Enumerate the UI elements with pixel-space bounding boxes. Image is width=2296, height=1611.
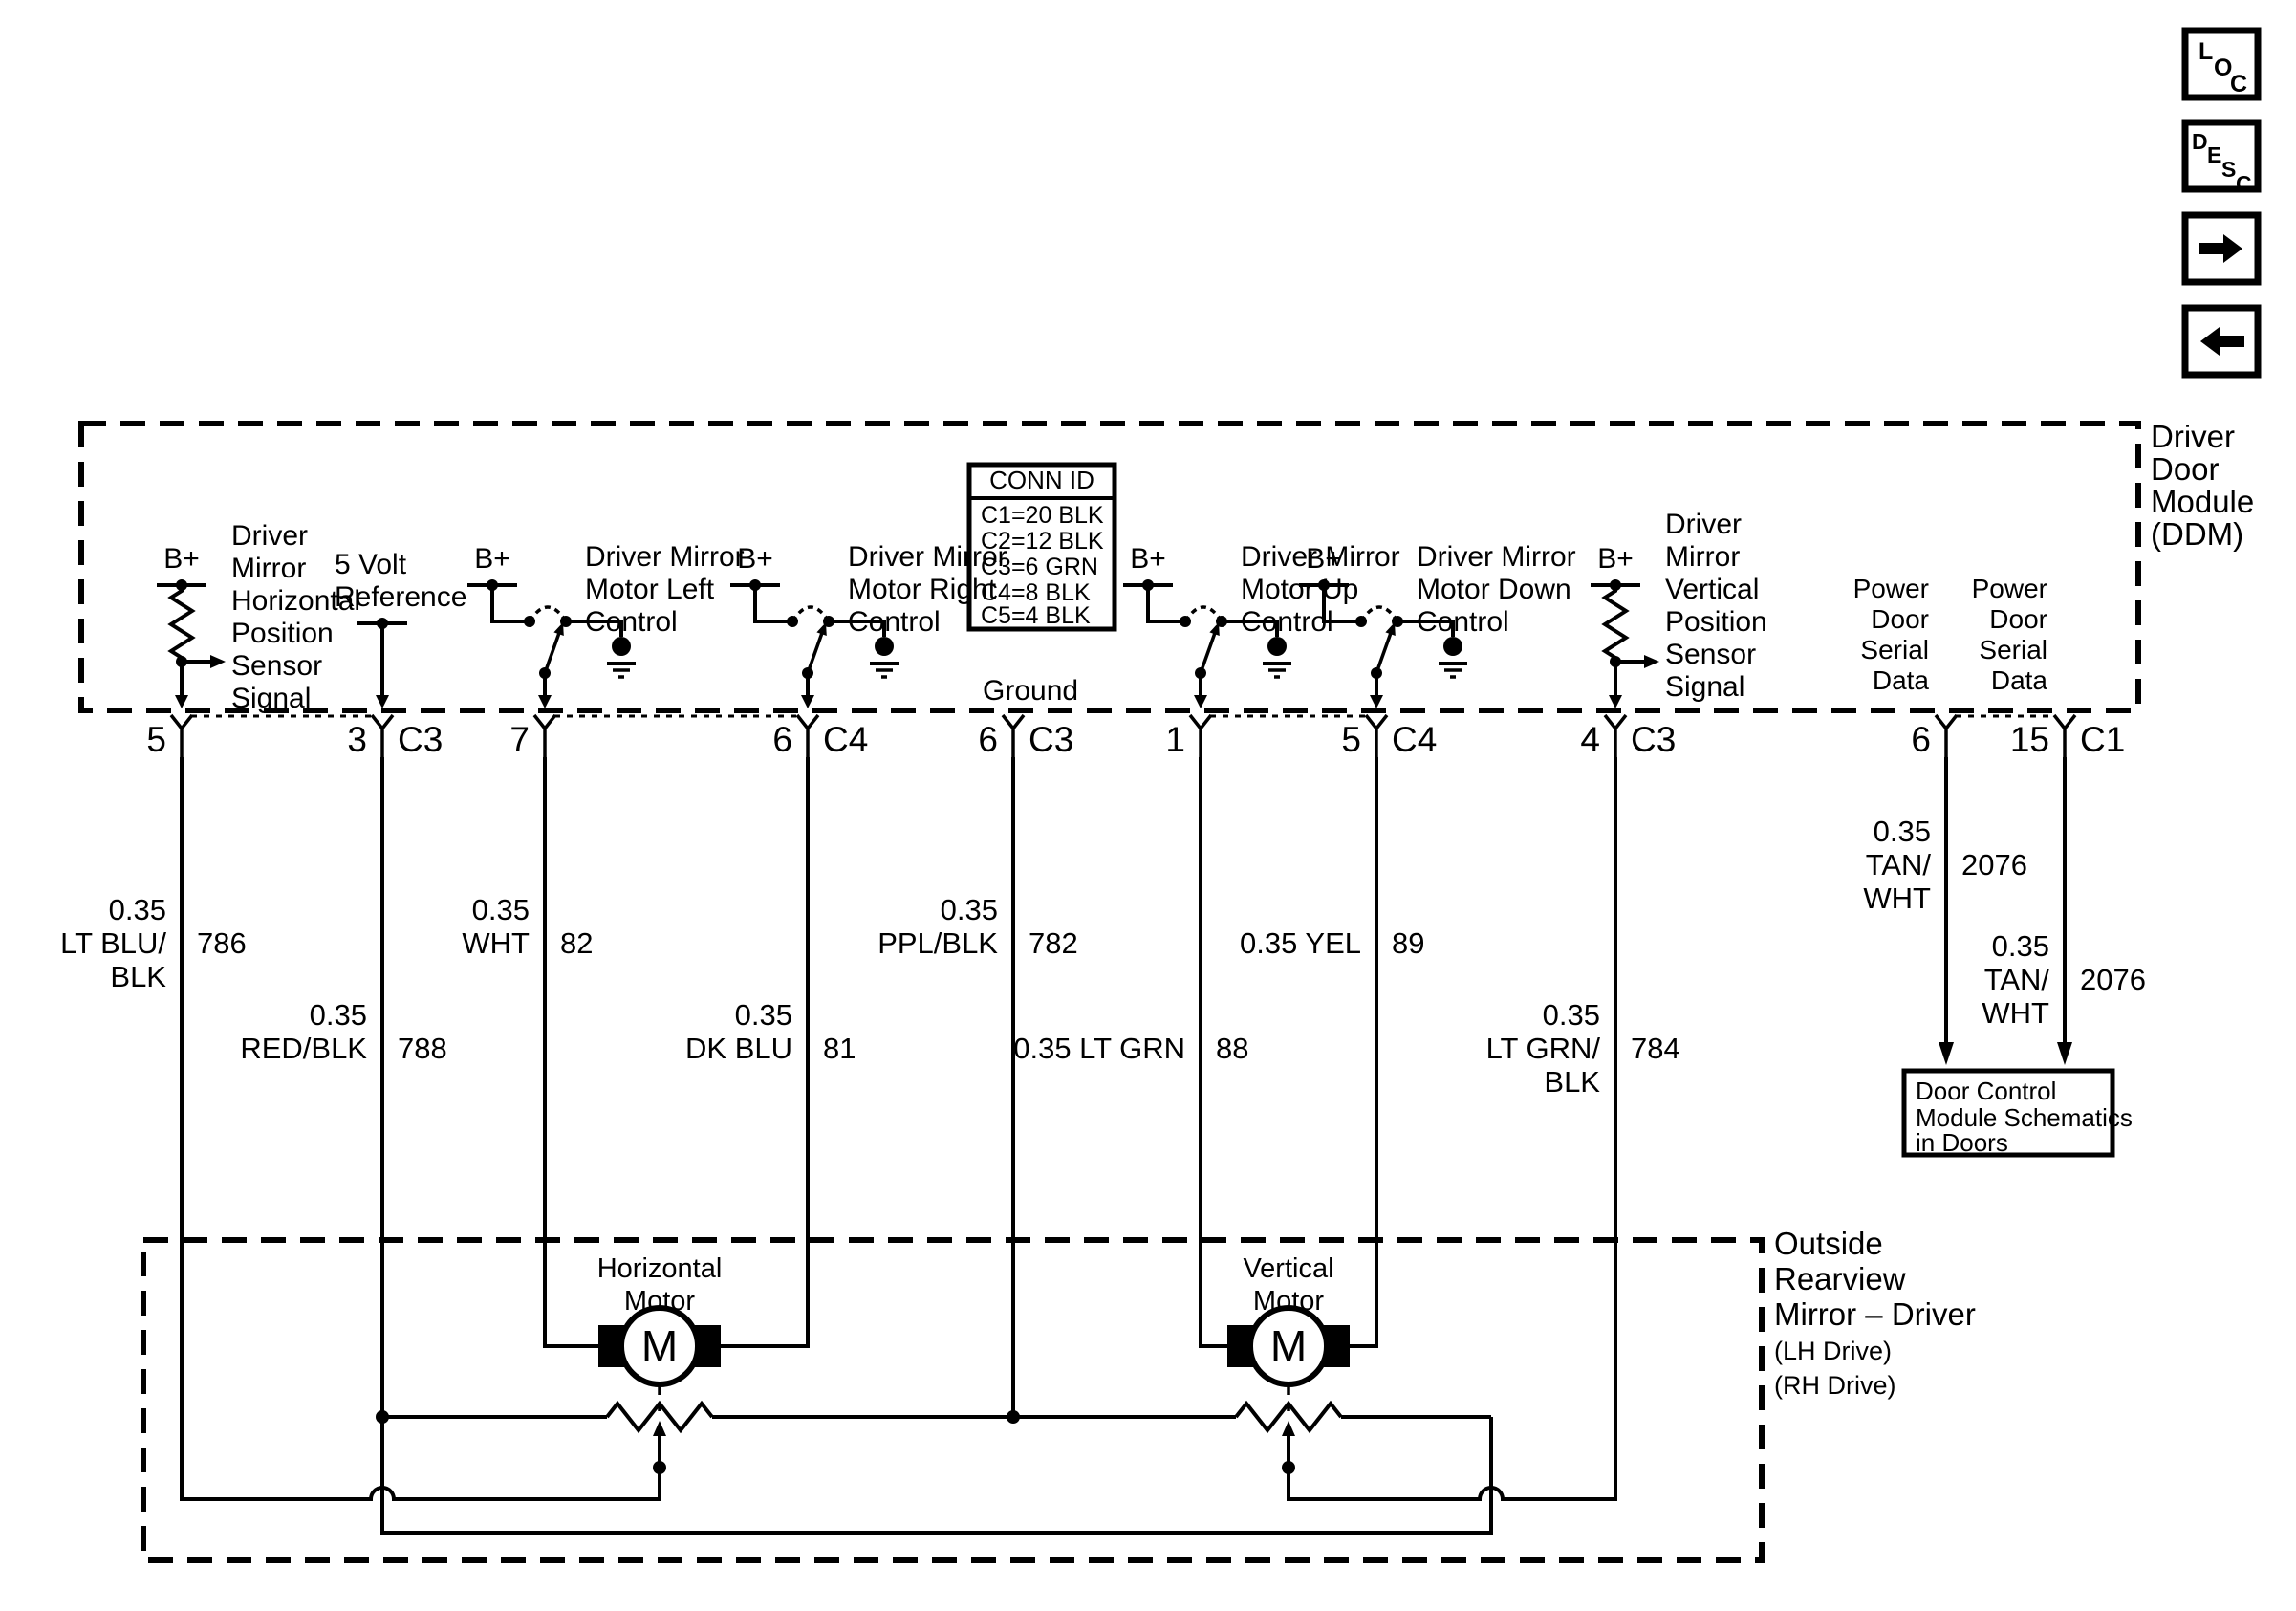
svg-text:2076: 2076 <box>2080 963 2146 996</box>
svg-text:Reference: Reference <box>335 581 466 613</box>
desc-letter: S <box>2221 157 2236 182</box>
svg-text:88: 88 <box>1216 1032 1248 1065</box>
svg-text:C1=20 BLK: C1=20 BLK <box>981 502 1104 529</box>
svg-text:Data: Data <box>1991 665 2048 695</box>
svg-text:0.35: 0.35 <box>109 893 166 926</box>
svg-text:C3: C3 <box>398 720 443 759</box>
svg-text:C3: C3 <box>1029 720 1073 759</box>
pin-numbers: 5 3 C3 7 6 C4 6 C3 1 5 C4 4 C3 6 15 C1 <box>146 720 2125 759</box>
svg-text:B+: B+ <box>163 543 200 575</box>
ddm-module-name: Driver Door Module (DDM) <box>2151 419 2254 552</box>
svg-text:Door Control: Door Control <box>1916 1077 2056 1105</box>
svg-text:0.35: 0.35 <box>310 998 367 1032</box>
svg-text:Driver Mirror: Driver Mirror <box>585 541 745 573</box>
svg-text:Position: Position <box>231 618 334 649</box>
vertical-motor-symbol: Vertical Motor M <box>1227 1253 1350 1413</box>
desc-letter: C <box>2236 171 2252 196</box>
svg-text:89: 89 <box>1392 926 1424 960</box>
svg-text:0.35: 0.35 <box>941 893 998 926</box>
schematic-canvas: L O C D E S C Driver Door Module (DDM) C… <box>0 0 2296 1611</box>
svg-text:5 Volt: 5 Volt <box>335 549 407 580</box>
svg-text:Control: Control <box>585 606 678 638</box>
svg-text:6: 6 <box>978 720 998 759</box>
svg-text:WHT: WHT <box>462 926 530 960</box>
loc-button[interactable]: L O C <box>2185 31 2258 98</box>
svg-text:4: 4 <box>1580 720 1600 759</box>
svg-text:Module: Module <box>2151 484 2254 519</box>
svg-text:Mirror – Driver: Mirror – Driver <box>1774 1296 1976 1332</box>
svg-text:Outside: Outside <box>1774 1226 1883 1261</box>
svg-text:Control: Control <box>1417 606 1509 638</box>
svg-text:Mirror: Mirror <box>1665 541 1740 573</box>
wire-label-89: 0.35 YEL 89 <box>1240 926 1424 960</box>
svg-text:Door: Door <box>1989 604 2047 634</box>
svg-text:5: 5 <box>1341 720 1361 759</box>
svg-text:0.35: 0.35 <box>735 998 792 1032</box>
svg-text:Driver: Driver <box>1665 509 1742 540</box>
wire-label-782: 0.35 PPL/BLK 782 <box>877 893 1078 960</box>
svg-text:Driver Mirror: Driver Mirror <box>848 541 1007 573</box>
wire-label-786: 0.35 LT BLU/ BLK 786 <box>60 893 247 993</box>
svg-text:Horizontal: Horizontal <box>597 1253 723 1284</box>
ddm-pin-row <box>171 715 2075 757</box>
svg-text:C5=4 BLK: C5=4 BLK <box>981 602 1091 629</box>
svg-text:B+: B+ <box>1306 543 1342 575</box>
svg-text:C3: C3 <box>1631 720 1676 759</box>
svg-text:Rearview: Rearview <box>1774 1261 1906 1296</box>
svg-text:Door: Door <box>1871 604 1929 634</box>
wiring-diagram-page: L O C D E S C Driver Door Module (DDM) C… <box>0 0 2296 1611</box>
svg-text:Serial: Serial <box>1860 635 1929 664</box>
svg-text:Motor Up: Motor Up <box>1241 574 1358 605</box>
desc-letter: D <box>2192 129 2208 154</box>
svg-text:B+: B+ <box>474 543 510 575</box>
svg-text:Sensor: Sensor <box>231 650 322 682</box>
svg-text:Door: Door <box>2151 451 2220 487</box>
mirror-module-name: Outside Rearview Mirror – Driver (LH Dri… <box>1774 1226 1976 1400</box>
svg-text:PPL/BLK: PPL/BLK <box>877 926 998 960</box>
svg-text:5: 5 <box>146 720 166 759</box>
mirror-left-switch-symbol: B+ Driver Mirror Motor Left Control <box>467 541 745 708</box>
svg-text:BLK: BLK <box>1544 1065 1600 1099</box>
svg-text:81: 81 <box>823 1032 856 1065</box>
svg-text:Control: Control <box>1241 606 1333 638</box>
svg-text:Signal: Signal <box>1665 671 1744 703</box>
position-sensor-rail <box>376 1404 1491 1430</box>
svg-text:B+: B+ <box>737 543 773 575</box>
svg-text:B+: B+ <box>1130 543 1166 575</box>
svg-text:Sensor: Sensor <box>1665 639 1756 670</box>
h-position-sensor-symbol: B+ Driver Mirror Horizontal Position Sen… <box>157 520 360 714</box>
mirror-right-switch-symbol: B+ Driver Mirror Motor Right Control <box>730 541 1007 708</box>
svg-text:LT BLU/: LT BLU/ <box>60 926 166 960</box>
svg-text:BLK: BLK <box>110 960 166 993</box>
svg-text:Driver: Driver <box>2151 419 2235 454</box>
svg-text:WHT: WHT <box>1863 882 1931 915</box>
h-pot-wiper <box>653 1421 666 1474</box>
svg-text:Power: Power <box>1972 574 2047 603</box>
svg-text:Motor Down: Motor Down <box>1417 574 1571 605</box>
svg-text:Serial: Serial <box>1979 635 2047 664</box>
svg-text:B+: B+ <box>1597 543 1634 575</box>
svg-text:Power: Power <box>1853 574 1929 603</box>
svg-text:Driver Mirror: Driver Mirror <box>1417 541 1576 573</box>
power-door-serial-data-label-a: Power Door Serial Data <box>1853 574 1930 695</box>
wire-label-88: 0.35 LT GRN 88 <box>1013 1032 1248 1065</box>
wire-label-788: 0.35 RED/BLK 788 <box>240 998 446 1065</box>
svg-text:WHT: WHT <box>1982 996 2049 1030</box>
forward-arrow-button[interactable] <box>2185 215 2258 282</box>
svg-text:6: 6 <box>772 720 792 759</box>
svg-text:7: 7 <box>509 720 530 759</box>
svg-text:Vertical: Vertical <box>1665 574 1759 605</box>
svg-text:CONN ID: CONN ID <box>989 466 1094 494</box>
wire-label-784: 0.35 LT GRN/ BLK 784 <box>1486 998 1680 1099</box>
svg-text:Driver: Driver <box>231 520 308 552</box>
door-control-reference-box: Door Control Module Schematics in Doors <box>1904 1071 2133 1157</box>
svg-text:786: 786 <box>197 926 247 960</box>
svg-text:Position: Position <box>1665 606 1767 638</box>
svg-text:RED/BLK: RED/BLK <box>240 1032 367 1065</box>
mirror-module-outline <box>143 1240 1762 1560</box>
wire-label-82: 0.35 WHT 82 <box>462 893 593 960</box>
mirror-down-switch-symbol: B+ Driver Mirror Motor Down Control <box>1299 541 1576 708</box>
svg-text:0.35: 0.35 <box>1992 929 2049 963</box>
svg-text:0.35: 0.35 <box>1874 815 1931 848</box>
svg-text:Motor Left: Motor Left <box>585 574 715 605</box>
svg-text:3: 3 <box>347 720 367 759</box>
svg-text:(RH Drive): (RH Drive) <box>1774 1371 1896 1400</box>
svg-text:15: 15 <box>2010 720 2049 759</box>
svg-text:0.35: 0.35 <box>1543 998 1600 1032</box>
svg-text:782: 782 <box>1029 926 1078 960</box>
svg-text:TAN/: TAN/ <box>1984 963 2050 996</box>
svg-text:1: 1 <box>1165 720 1185 759</box>
horizontal-motor-symbol: Horizontal Motor M <box>597 1253 723 1413</box>
svg-text:0.35 LT GRN: 0.35 LT GRN <box>1013 1032 1185 1065</box>
svg-text:DK BLU: DK BLU <box>685 1032 792 1065</box>
svg-text:784: 784 <box>1631 1032 1680 1065</box>
svg-text:Vertical: Vertical <box>1243 1253 1333 1284</box>
svg-text:2076: 2076 <box>1961 848 2027 882</box>
svg-text:Motor Right: Motor Right <box>848 574 997 605</box>
motor-m: M <box>641 1321 678 1371</box>
wire-label-81: 0.35 DK BLU 81 <box>685 998 856 1065</box>
power-door-serial-data-label-b: Power Door Serial Data <box>1972 574 2048 695</box>
svg-text:Mirror: Mirror <box>231 553 306 584</box>
svg-text:0.35 YEL: 0.35 YEL <box>1240 926 1361 960</box>
motor-m: M <box>1270 1321 1307 1371</box>
svg-text:Data: Data <box>1873 665 1930 695</box>
svg-text:Signal: Signal <box>231 683 311 714</box>
svg-text:6: 6 <box>1911 720 1931 759</box>
v-position-sensor-symbol: B+ Driver Mirror Vertical Position Senso… <box>1591 509 1767 708</box>
svg-text:(LH Drive): (LH Drive) <box>1774 1337 1892 1365</box>
svg-text:Control: Control <box>848 606 941 638</box>
v-pot-wiper <box>1282 1421 1295 1474</box>
five-volt-reference-symbol: 5 Volt Reference <box>335 549 466 708</box>
svg-text:C4: C4 <box>1392 720 1437 759</box>
svg-text:788: 788 <box>398 1032 447 1065</box>
svg-text:C1: C1 <box>2080 720 2125 759</box>
svg-text:0.35: 0.35 <box>472 893 530 926</box>
svg-text:LT GRN/: LT GRN/ <box>1486 1032 1601 1065</box>
ground-label: Ground <box>983 675 1078 707</box>
svg-text:in Doors: in Doors <box>1916 1128 2008 1157</box>
svg-text:TAN/: TAN/ <box>1866 848 1932 882</box>
loc-letter: L <box>2199 38 2213 65</box>
svg-text:C4: C4 <box>823 720 868 759</box>
desc-letter: E <box>2207 142 2221 167</box>
svg-text:(DDM): (DDM) <box>2151 516 2243 552</box>
desc-button[interactable]: D E S C <box>2185 122 2258 196</box>
back-arrow-button[interactable] <box>2185 308 2258 375</box>
loc-letter: C <box>2230 71 2247 98</box>
svg-text:82: 82 <box>560 926 593 960</box>
